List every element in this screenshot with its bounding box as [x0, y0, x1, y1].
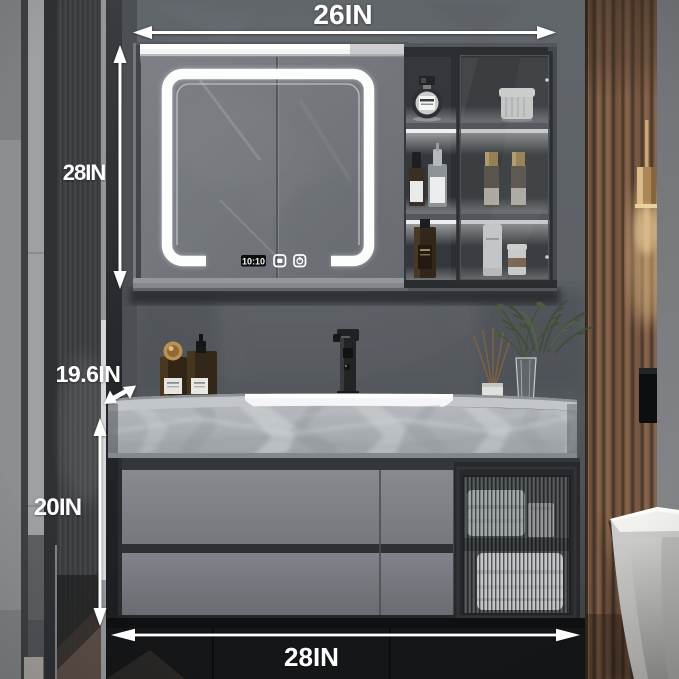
svg-text:28IN: 28IN: [63, 160, 106, 185]
svg-text:20IN: 20IN: [34, 494, 82, 521]
svg-text:19.6IN: 19.6IN: [56, 361, 121, 387]
svg-text:28IN: 28IN: [284, 642, 339, 672]
svg-text:26IN: 26IN: [313, 0, 372, 30]
